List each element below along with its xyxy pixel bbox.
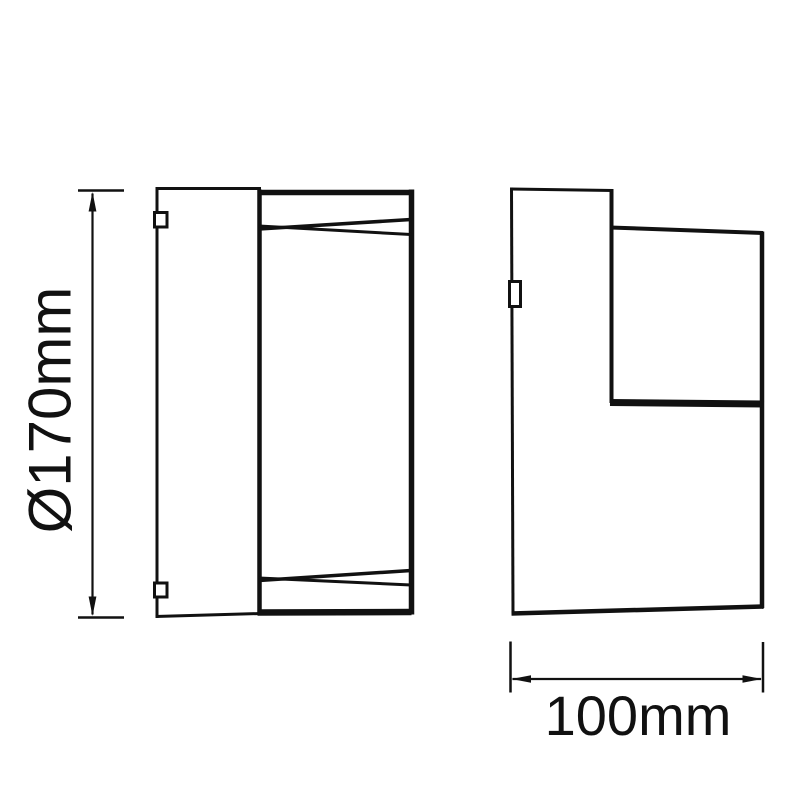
front-body-bottom-edge <box>258 612 412 613</box>
side-view <box>510 188 765 615</box>
front-top-louver-upper-line <box>259 220 411 230</box>
side-plate-left-edge <box>512 188 514 615</box>
side-bottom-edge <box>512 607 764 614</box>
height-dimension-arrow-down-icon <box>89 597 97 617</box>
depth-dimension-arrow-left-icon <box>512 675 532 683</box>
front-backplate-bottom-edge <box>156 614 262 617</box>
side-mounting-clip <box>510 282 521 307</box>
height-dimension-label-text: Ø170mm <box>20 287 80 534</box>
side-head-bottom-edge <box>610 403 764 405</box>
side-head-top-edge <box>610 228 763 234</box>
front-view <box>155 187 412 618</box>
side-plate-top-edge <box>511 189 614 191</box>
depth-dimension-arrow-right-icon <box>743 675 763 683</box>
line-art <box>0 0 800 800</box>
front-bottom-mounting-clip <box>155 583 168 597</box>
height-dimension-arrow-up-icon <box>89 192 97 212</box>
technical-drawing-canvas: Ø170mm 100mm <box>0 0 800 800</box>
front-bottom-louver-upper-line <box>259 571 411 581</box>
front-top-mounting-clip <box>155 213 168 228</box>
height-dimension <box>78 191 124 618</box>
depth-dimension-label-text: 100mm <box>545 688 732 744</box>
